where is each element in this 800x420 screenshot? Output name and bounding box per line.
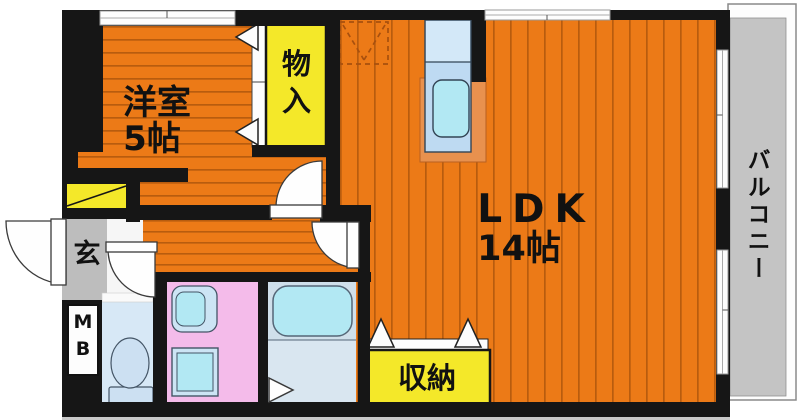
- floor-plan: 洋室 5帖 物入 LDK 14帖 収納 玄 MB バルコニー: [0, 0, 800, 420]
- storage-label: 収納: [371, 363, 483, 393]
- window-west-room: [100, 11, 235, 25]
- kitchen-counter-top: [426, 21, 470, 62]
- closet-label: 物入: [281, 46, 312, 120]
- ldk-size: 14帖: [444, 231, 594, 268]
- window-ldk-top: [485, 10, 610, 20]
- bathtub: [273, 286, 352, 336]
- door-leaf-toilet: [106, 242, 157, 252]
- kitchen-sink: [433, 80, 469, 137]
- door-leaf-entrance: [51, 219, 66, 285]
- door-leaf-west-room: [270, 205, 322, 218]
- door-leaf-ldk: [347, 222, 359, 268]
- kitchen-unit: [420, 20, 486, 162]
- balcony-label: バルコニー: [744, 148, 768, 283]
- ldk-name: LDK: [455, 190, 617, 231]
- washing-machine-space: [172, 348, 218, 396]
- washbasin: [172, 286, 217, 332]
- window-balcony-upper: [717, 50, 728, 188]
- floor-plan-drawing: [0, 0, 800, 420]
- meter-box-label: MB: [72, 309, 94, 363]
- entrance-label: 玄: [72, 241, 102, 269]
- shoe-cabinet: [66, 183, 127, 209]
- kitchen-wall-stub: [471, 20, 486, 82]
- window-balcony-lower: [717, 250, 728, 374]
- western-room-name: 洋室: [97, 86, 217, 122]
- western-room-size: 5帖: [92, 122, 212, 158]
